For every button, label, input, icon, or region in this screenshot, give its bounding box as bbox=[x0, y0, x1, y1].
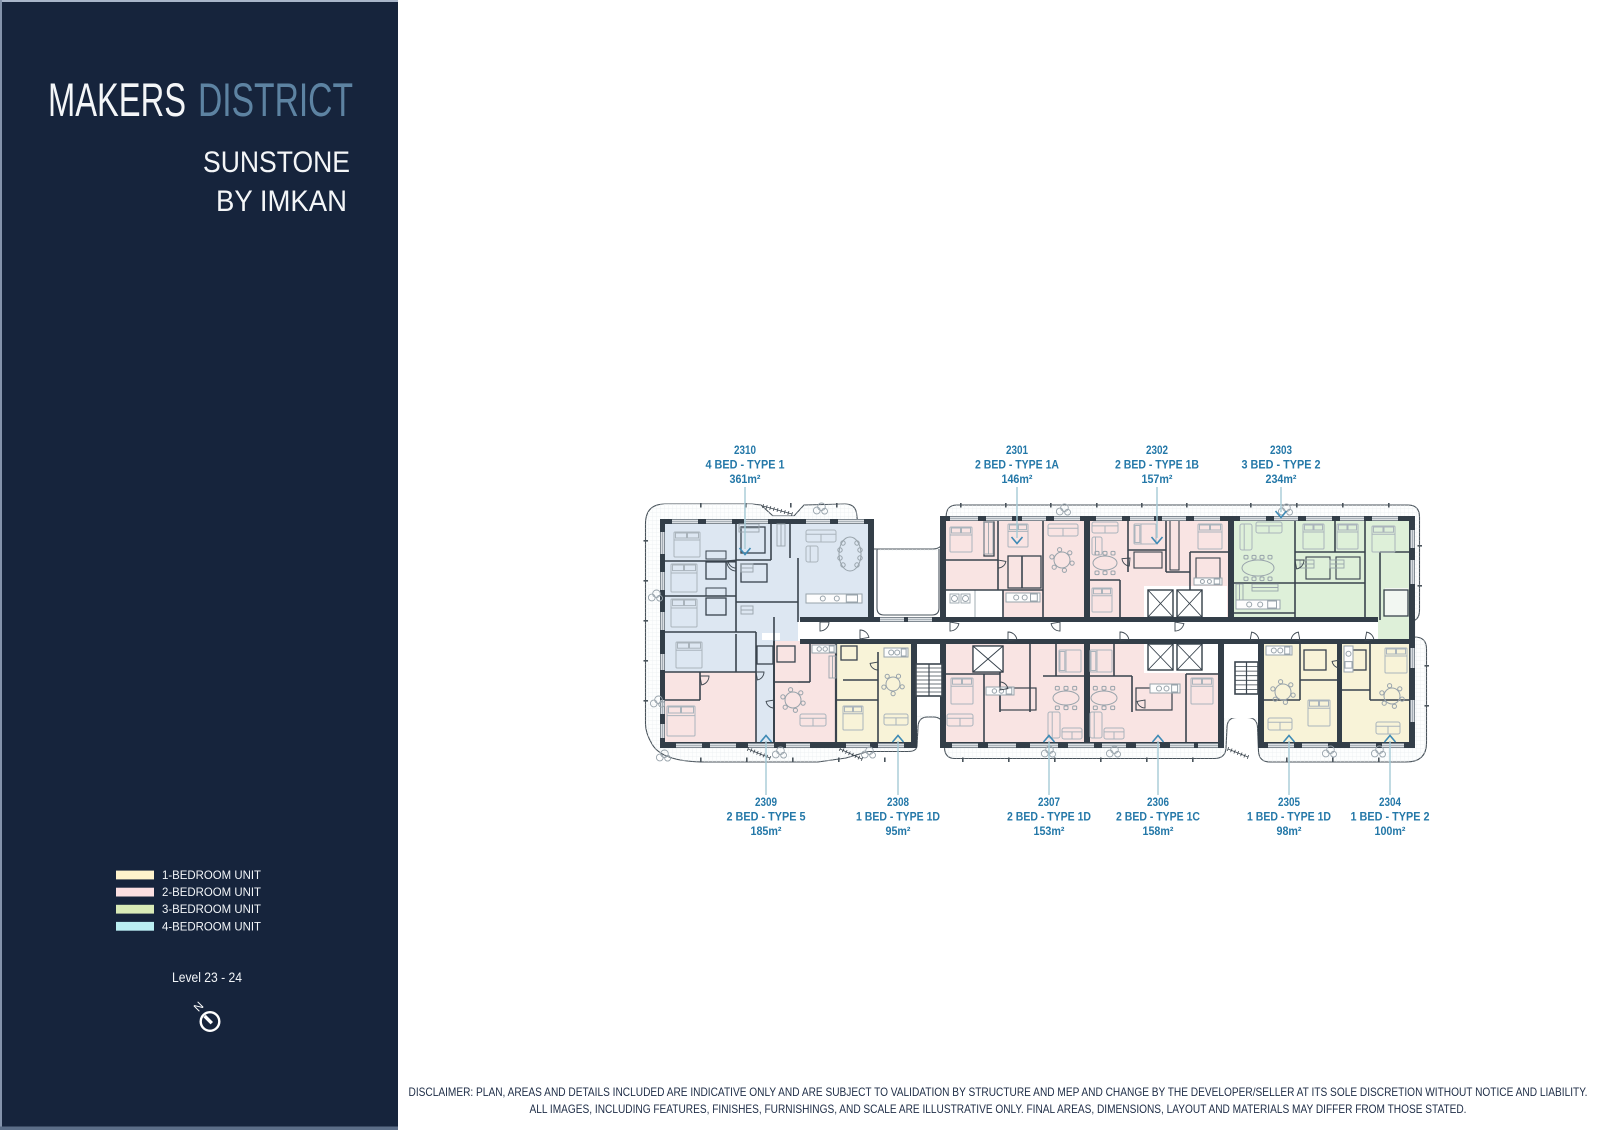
svg-text:1 BED - TYPE 2: 1 BED - TYPE 2 bbox=[1351, 810, 1430, 824]
svg-text:2310: 2310 bbox=[734, 443, 756, 457]
svg-text:DISCLAIMER: PLAN, AREAS AND DE: DISCLAIMER: PLAN, AREAS AND DETAILS INCL… bbox=[409, 1086, 1588, 1099]
svg-text:2 BED - TYPE 1B: 2 BED - TYPE 1B bbox=[1115, 458, 1199, 472]
svg-text:157m²: 157m² bbox=[1142, 472, 1173, 486]
svg-text:98m²: 98m² bbox=[1277, 824, 1302, 838]
svg-text:2 BED - TYPE 5: 2 BED - TYPE 5 bbox=[727, 810, 806, 824]
svg-text:2309: 2309 bbox=[755, 795, 777, 809]
svg-text:2307: 2307 bbox=[1038, 795, 1060, 809]
svg-text:2-BEDROOM UNIT: 2-BEDROOM UNIT bbox=[162, 886, 261, 899]
svg-text:3 BED - TYPE 2: 3 BED - TYPE 2 bbox=[1242, 458, 1321, 472]
svg-text:4 BED - TYPE 1: 4 BED - TYPE 1 bbox=[706, 458, 785, 472]
svg-text:100m²: 100m² bbox=[1375, 824, 1406, 838]
svg-text:95m²: 95m² bbox=[886, 824, 911, 838]
svg-text:185m²: 185m² bbox=[751, 824, 782, 838]
svg-text:2301: 2301 bbox=[1006, 443, 1028, 457]
svg-text:2303: 2303 bbox=[1270, 443, 1292, 457]
svg-text:2306: 2306 bbox=[1147, 795, 1169, 809]
svg-text:Level 23 - 24: Level 23 - 24 bbox=[172, 970, 242, 985]
svg-text:DISTRICT: DISTRICT bbox=[198, 73, 353, 126]
svg-text:MAKERS: MAKERS bbox=[48, 73, 186, 126]
svg-text:1 BED - TYPE 1D: 1 BED - TYPE 1D bbox=[1247, 810, 1331, 824]
svg-text:1-BEDROOM UNIT: 1-BEDROOM UNIT bbox=[162, 869, 261, 882]
svg-text:361m²: 361m² bbox=[730, 472, 761, 486]
svg-text:3-BEDROOM UNIT: 3-BEDROOM UNIT bbox=[162, 903, 261, 916]
svg-text:2302: 2302 bbox=[1146, 443, 1168, 457]
svg-text:2308: 2308 bbox=[887, 795, 909, 809]
svg-text:158m²: 158m² bbox=[1143, 824, 1174, 838]
svg-text:4-BEDROOM UNIT: 4-BEDROOM UNIT bbox=[162, 920, 261, 933]
svg-text:146m²: 146m² bbox=[1002, 472, 1033, 486]
svg-text:BY IMKAN: BY IMKAN bbox=[216, 185, 347, 218]
svg-text:SUNSTONE: SUNSTONE bbox=[203, 146, 350, 179]
svg-text:234m²: 234m² bbox=[1266, 472, 1297, 486]
svg-text:ALL IMAGES, INCLUDING FEATURES: ALL IMAGES, INCLUDING FEATURES, FINISHES… bbox=[530, 1103, 1467, 1116]
svg-text:2 BED - TYPE 1C: 2 BED - TYPE 1C bbox=[1116, 810, 1200, 824]
svg-text:1 BED - TYPE 1D: 1 BED - TYPE 1D bbox=[856, 810, 940, 824]
svg-text:2 BED - TYPE 1D: 2 BED - TYPE 1D bbox=[1007, 810, 1091, 824]
svg-text:153m²: 153m² bbox=[1034, 824, 1065, 838]
svg-text:2304: 2304 bbox=[1379, 795, 1401, 809]
svg-text:2305: 2305 bbox=[1278, 795, 1300, 809]
svg-text:2 BED - TYPE 1A: 2 BED - TYPE 1A bbox=[975, 458, 1059, 472]
